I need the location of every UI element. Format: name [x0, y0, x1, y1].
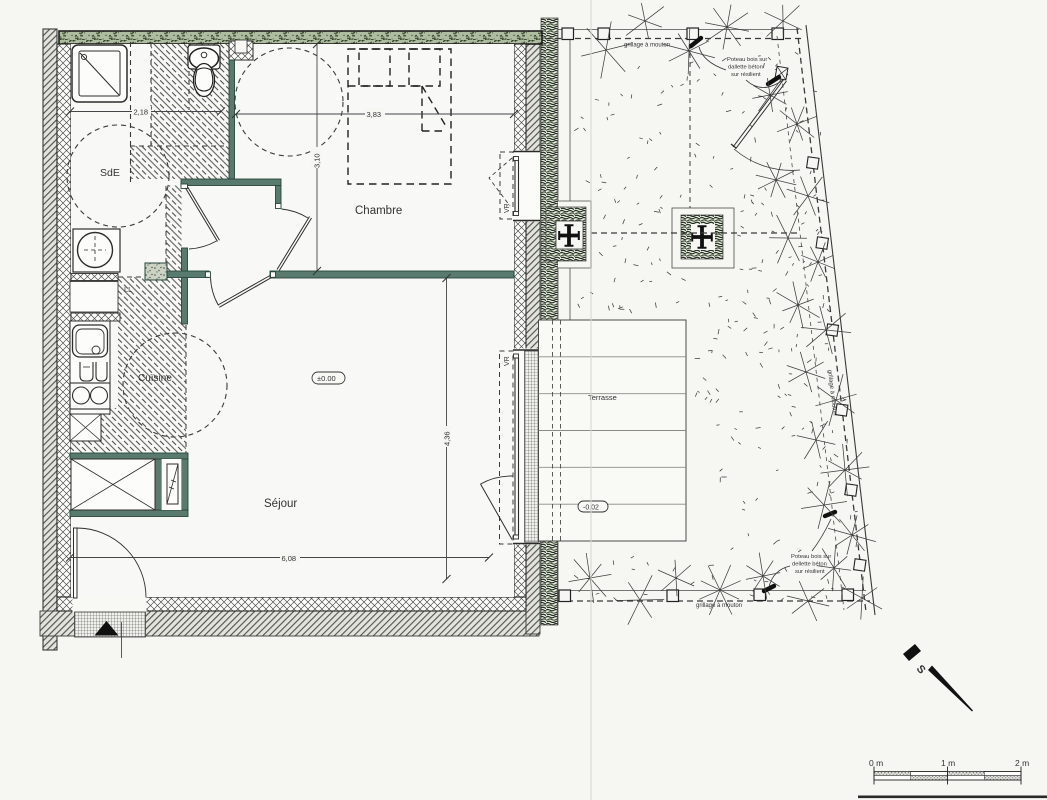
svg-text:VR: VR [504, 203, 511, 213]
svg-text:6,08: 6,08 [282, 554, 297, 563]
svg-text:2,18: 2,18 [134, 108, 149, 117]
svg-text:2 m: 2 m [1015, 758, 1029, 768]
svg-text:dallette béton: dallette béton [728, 65, 763, 71]
svg-text:SdE: SdE [100, 167, 120, 179]
svg-text:Terrasse: Terrasse [588, 393, 617, 402]
svg-text:Poteau bois sur: Poteau bois sur [727, 57, 767, 63]
svg-text:3,83: 3,83 [367, 110, 382, 119]
svg-text:grillage à mouton: grillage à mouton [696, 603, 742, 609]
svg-text:Cuïsine: Cuïsine [138, 373, 172, 384]
svg-text:4,36: 4,36 [443, 431, 452, 446]
svg-text:sur résilient: sur résilient [795, 569, 825, 575]
svg-text:grillage à mouton: grillage à mouton [624, 43, 670, 49]
svg-text:1 m: 1 m [941, 758, 955, 768]
svg-text:Poteau bois sur: Poteau bois sur [791, 554, 831, 560]
svg-text:sur résilient: sur résilient [731, 72, 761, 78]
svg-text:3,10: 3,10 [313, 153, 322, 168]
svg-text:±0.00: ±0.00 [317, 374, 336, 383]
svg-text:Chambre: Chambre [355, 205, 402, 217]
svg-text:Séjour: Séjour [264, 498, 297, 510]
svg-text:0 m: 0 m [869, 758, 883, 768]
svg-text:LL: LL [124, 285, 132, 294]
svg-text:VR: VR [504, 356, 511, 366]
